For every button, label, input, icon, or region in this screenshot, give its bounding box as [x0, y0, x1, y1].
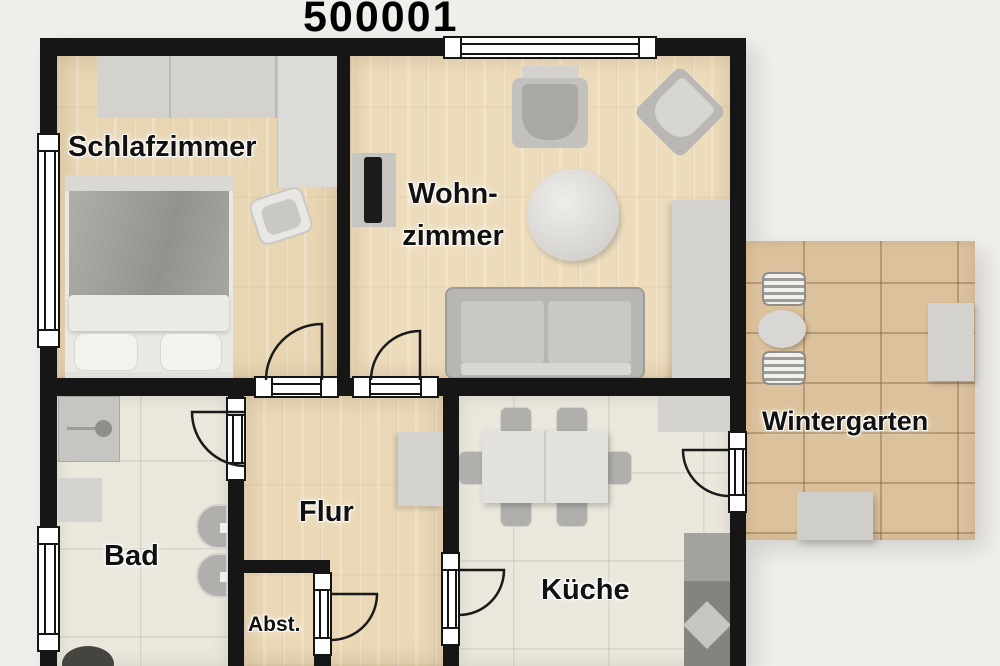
- bed-sheet-fold: [69, 295, 229, 331]
- label-wohnzimmer-line1: Wohn-: [408, 178, 498, 210]
- armchair-1: [512, 78, 588, 148]
- coffee-table: [527, 169, 619, 261]
- pillow: [74, 333, 138, 371]
- wintergarten-chair-2: [762, 351, 806, 385]
- wall-right: [730, 38, 746, 666]
- bath-cabinet: [58, 478, 102, 522]
- wintergarten-planter: [928, 303, 974, 381]
- floor-plan: 500001: [0, 0, 1000, 666]
- shower-head: [95, 420, 112, 437]
- shower: [58, 396, 120, 462]
- label-flur: Flur: [299, 496, 354, 529]
- sofa: [445, 287, 645, 379]
- door-schlafzimmer: [254, 376, 339, 398]
- dining-table: [482, 431, 608, 503]
- pillow: [160, 333, 222, 371]
- bed-foot-board: [65, 175, 233, 191]
- label-bad: Bad: [104, 540, 159, 573]
- dining-chair: [458, 451, 484, 485]
- kitchen-sink: [683, 601, 731, 649]
- wardrobe: [97, 56, 277, 118]
- label-wintergarten: Wintergarten: [762, 406, 928, 437]
- window-wohnzimmer: [443, 36, 657, 59]
- tv: [364, 157, 382, 223]
- door-bad: [226, 397, 246, 481]
- sideboard: [672, 200, 730, 382]
- wall-bed-living: [337, 38, 350, 396]
- door-wohnzimmer: [352, 376, 439, 398]
- wardrobe-side: [277, 56, 337, 187]
- door-abstellraum: [313, 572, 332, 656]
- label-wohnzimmer: Wohn- zimmer: [396, 173, 510, 257]
- window-bad: [37, 526, 60, 652]
- label-kueche: Küche: [541, 574, 630, 607]
- dining-chair: [606, 451, 632, 485]
- door-kueche: [441, 552, 460, 646]
- hall-cabinet: [398, 432, 443, 506]
- kitchen-cabinet: [658, 396, 730, 432]
- bed: [65, 175, 233, 385]
- wintergarten-chair-1: [762, 272, 806, 306]
- kitchen-counter: [684, 533, 730, 666]
- label-abstellraum: Abst.: [248, 613, 301, 637]
- dining-chair: [556, 499, 588, 527]
- wintergarten-bench: [797, 492, 873, 540]
- window-schlafzimmer: [37, 133, 60, 348]
- bed-duvet: [69, 191, 229, 297]
- label-schlafzimmer: Schlafzimmer: [68, 131, 257, 164]
- dining-chair: [500, 499, 532, 527]
- plan-title: 500001: [303, 0, 459, 42]
- label-wohnzimmer-line2: zimmer: [402, 220, 504, 252]
- door-wintergarten: [728, 431, 747, 513]
- wintergarten-table: [758, 310, 806, 348]
